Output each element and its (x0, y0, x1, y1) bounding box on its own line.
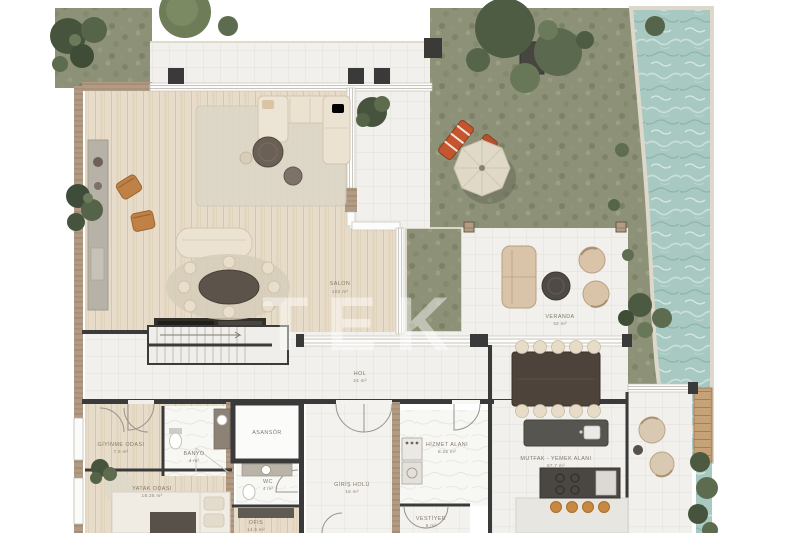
appliance-1 (402, 438, 422, 460)
column-2 (348, 68, 364, 84)
pillow-2 (204, 514, 224, 527)
pillow-1 (204, 497, 224, 510)
label-ofis: OFİS (249, 519, 263, 526)
wc-sink (262, 466, 271, 475)
side-table-small (633, 445, 643, 455)
curved-sofa (176, 228, 252, 258)
side-table (240, 152, 252, 164)
wc-toilet (243, 485, 255, 500)
label-yatak: YATAK ODASI (132, 486, 172, 492)
decor-bowl-1 (93, 157, 103, 167)
salon-dining-table (199, 270, 259, 304)
floor-plan-image: SALON 102 m² VERANDA 42 m² HOL 24 m² GİY… (0, 0, 800, 533)
stair-rail (148, 344, 272, 347)
label-hizmet: HİZMET ALANI (426, 441, 468, 448)
window-bedroom-2 (74, 478, 83, 524)
pier-east (688, 382, 698, 394)
door-gap-entry (336, 400, 392, 404)
pier-south-3 (622, 334, 632, 347)
room-giris-holu-floor (306, 402, 398, 533)
coffee-table-small (284, 167, 302, 185)
window-salon-step (352, 222, 400, 230)
label-giyinme-area: 7.5 m² (113, 449, 128, 454)
wall-giris-east (392, 402, 400, 533)
decor-bowl-2 (94, 182, 102, 190)
label-banyo-area: 4 m² (189, 458, 200, 463)
wall-hizmet-kitchen (488, 402, 492, 533)
window-salon-north (150, 83, 432, 91)
accent-chair-2 (130, 210, 155, 232)
window-east-wing (628, 384, 694, 392)
label-veranda-area: 42 m² (553, 321, 567, 326)
island-sink (584, 426, 600, 439)
chimney-block (424, 38, 442, 58)
label-giyinme: GİYİNME ODASI (98, 441, 145, 448)
faucet (579, 430, 582, 433)
label-wc: WC (263, 479, 273, 485)
tree-top-center (159, 0, 238, 38)
label-veranda: VERANDA (545, 314, 574, 320)
wall-north-west (82, 82, 152, 91)
label-hol: HOL (354, 371, 366, 377)
vanity-sink (217, 415, 227, 425)
label-vestiyer: VESTİYER (416, 515, 446, 522)
pillow (262, 100, 274, 109)
door-gap-giyinme (128, 400, 154, 404)
bed-throw (150, 512, 196, 533)
label-wc-area: 4 m² (263, 486, 274, 491)
label-banyo: BANYO (183, 451, 204, 457)
counter-sink (596, 471, 616, 495)
wood-deck (694, 388, 712, 462)
decor-tray (91, 248, 104, 280)
ofis-desk (238, 508, 294, 518)
watermark-text: TEK (262, 282, 468, 367)
label-asansor: ASANSÖR (252, 429, 282, 436)
wall-salon-south (82, 330, 154, 334)
window-bedroom-1 (74, 418, 83, 460)
label-yatak-area: 18.25 m² (142, 493, 163, 498)
floor-plan-page: SALON 102 m² VERANDA 42 m² HOL 24 m² GİY… (0, 0, 800, 533)
column-3 (374, 68, 390, 84)
wall-west (74, 86, 83, 533)
veranda-pier-right (616, 222, 626, 232)
pillow (332, 104, 344, 113)
label-vestiyer-area: 5 m² (426, 523, 437, 528)
column-1 (168, 68, 184, 84)
appliance-2 (402, 462, 422, 484)
pier-south-1 (470, 334, 488, 347)
wall-hol-kitchen (488, 345, 492, 402)
door-gap-hizmet (452, 400, 480, 404)
toilet (170, 433, 182, 449)
label-mutfak-area: 67.7 m² (547, 463, 565, 468)
wall-pier-salon (345, 188, 357, 212)
label-giris-holu-area: 16 m² (345, 489, 359, 494)
coffee-table-large (253, 137, 283, 167)
label-hol-area: 24 m² (353, 378, 367, 383)
veranda-pier-left (464, 222, 474, 232)
label-giris-holu: GİRİŞ HOLÜ (334, 481, 370, 488)
label-ofis-area: 14.5 m² (247, 527, 265, 532)
outdoor-table (542, 272, 570, 300)
label-hizmet-area: 8.25 m² (438, 449, 456, 454)
label-mutfak: MUTFAK - YEMEK ALANI (520, 456, 591, 462)
